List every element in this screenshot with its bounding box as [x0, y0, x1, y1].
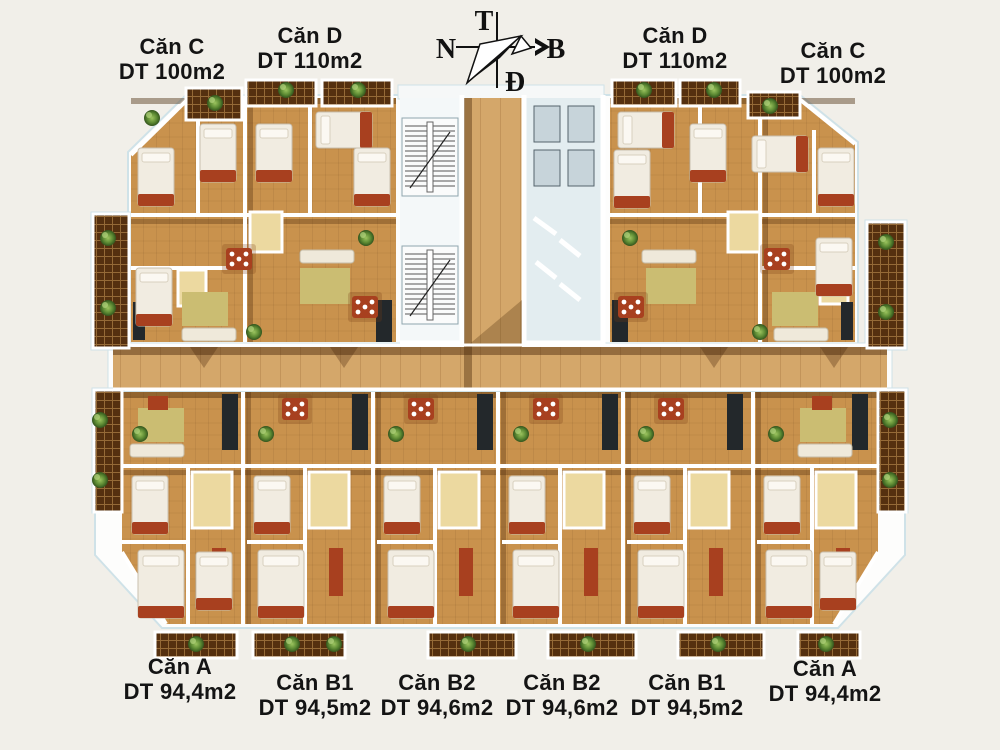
unit-area: DT 110m2: [257, 48, 362, 73]
unit-name: Căn C: [119, 34, 225, 59]
unit-name: Căn D: [257, 23, 362, 48]
label-top-can-d-right: Căn D DT 110m2: [622, 23, 727, 73]
unit-area: DT 94,4m2: [124, 679, 237, 704]
unit-area: DT 94,5m2: [259, 695, 372, 720]
staircase-upper: [402, 118, 458, 196]
label-bottom-can-b1-left: Căn B1 DT 94,5m2: [259, 670, 372, 720]
staircase-lower: [402, 246, 458, 324]
unit-area: DT 94,6m2: [506, 695, 619, 720]
label-bottom-can-b1-right: Căn B1 DT 94,5m2: [631, 670, 744, 720]
unit-name: Căn B1: [259, 670, 372, 695]
compass-letter-bottom: Đ: [505, 67, 525, 98]
unit-area: DT 94,5m2: [631, 695, 744, 720]
label-top-can-c-left: Căn C DT 100m2: [119, 34, 225, 84]
label-bottom-can-b2-left: Căn B2 DT 94,6m2: [381, 670, 494, 720]
unit-name: Căn C: [780, 38, 886, 63]
unit-name: Căn B1: [631, 670, 744, 695]
floor-plan-graphic: T N B Đ: [0, 0, 1000, 750]
unit-name: Căn B2: [381, 670, 494, 695]
compass-letter-right: B: [547, 34, 566, 65]
compass: T N B Đ: [436, 6, 565, 98]
label-bottom-can-a-right: Căn A DT 94,4m2: [769, 656, 882, 706]
unit-area: DT 100m2: [780, 63, 886, 88]
label-top-can-c-right: Căn C DT 100m2: [780, 38, 886, 88]
floor-plan-page: T N B Đ Căn C DT 100m2 Căn D DT 110m2 Că…: [0, 0, 1000, 750]
label-bottom-can-b2-right: Căn B2 DT 94,6m2: [506, 670, 619, 720]
compass-letter-left: N: [436, 34, 456, 65]
unit-name: Căn A: [769, 656, 882, 681]
unit-area: DT 94,4m2: [769, 681, 882, 706]
unit-area: DT 94,6m2: [381, 695, 494, 720]
unit-name: Căn D: [622, 23, 727, 48]
compass-letter-top: T: [475, 6, 494, 37]
unit-name: Căn A: [124, 654, 237, 679]
label-bottom-can-a-left: Căn A DT 94,4m2: [124, 654, 237, 704]
label-top-can-d-left: Căn D DT 110m2: [257, 23, 362, 73]
unit-area: DT 100m2: [119, 59, 225, 84]
unit-name: Căn B2: [506, 670, 619, 695]
unit-area: DT 110m2: [622, 48, 727, 73]
